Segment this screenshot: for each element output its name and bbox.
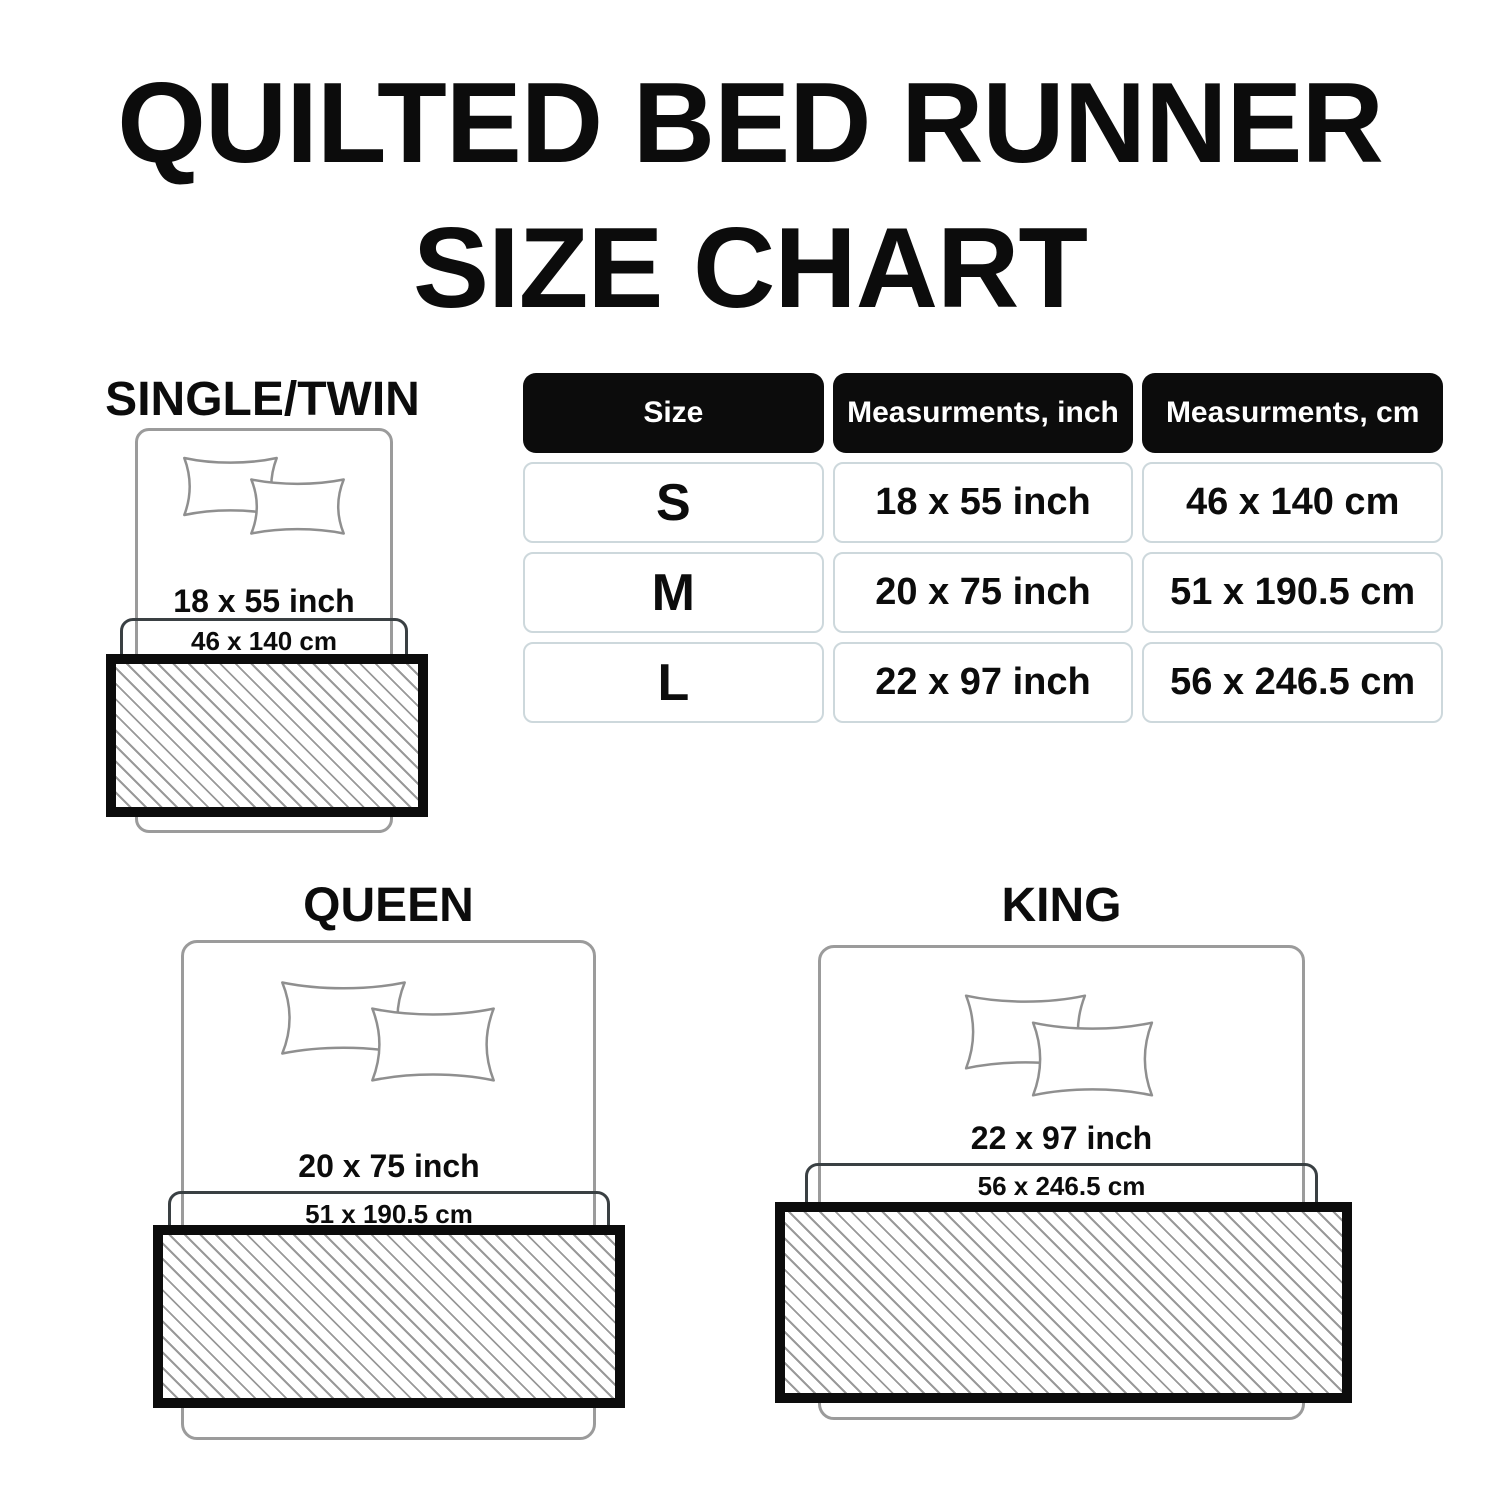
twin-inch-dimension-label: 18 x 55 inch	[120, 583, 408, 620]
pillow-icon	[1033, 1023, 1152, 1096]
queen-inch-dimension-label: 20 x 75 inch	[168, 1148, 610, 1185]
table-header-size: Size	[523, 373, 824, 453]
table-cell-inch-m: 20 x 75 inch	[833, 552, 1134, 633]
twin-section-label: SINGLE/TWIN	[90, 372, 435, 427]
pillow-icon	[372, 1009, 493, 1081]
king-bed-runner-swatch	[775, 1202, 1352, 1403]
table-cell-inch-l: 22 x 97 inch	[833, 642, 1134, 723]
table-cell-size-m: M	[523, 552, 824, 633]
twin-bed-runner-swatch	[106, 654, 428, 817]
twin-cm-dimension-label: 46 x 140 cm	[123, 621, 405, 657]
table-cell-inch-s: 18 x 55 inch	[833, 462, 1134, 543]
king-inch-dimension-label: 22 x 97 inch	[805, 1120, 1318, 1157]
table-cell-cm-l: 56 x 246.5 cm	[1142, 642, 1443, 723]
page-title-line1: QUILTED BED RUNNER	[0, 52, 1500, 197]
king-pillows-icon	[818, 945, 1305, 1125]
page-title-line2: SIZE CHART	[0, 197, 1500, 342]
table-cell-size-s: S	[523, 462, 824, 543]
twin-pillows-icon	[135, 428, 393, 578]
king-section-label: KING	[818, 878, 1305, 933]
queen-pillows-icon	[181, 940, 596, 1110]
king-cm-dimension-label: 56 x 246.5 cm	[808, 1166, 1315, 1202]
size-table: Size Measurments, inch Measurments, cm S…	[523, 373, 1443, 723]
queen-section-label: QUEEN	[181, 878, 596, 933]
table-header-inch: Measurments, inch	[833, 373, 1134, 453]
table-cell-cm-m: 51 x 190.5 cm	[1142, 552, 1443, 633]
table-cell-cm-s: 46 x 140 cm	[1142, 462, 1443, 543]
pillow-icon	[251, 480, 343, 534]
queen-bed-runner-swatch	[153, 1225, 625, 1408]
table-cell-size-l: L	[523, 642, 824, 723]
size-chart-infographic: QUILTED BED RUNNER SIZE CHART Size Measu…	[0, 0, 1500, 1500]
page-title: QUILTED BED RUNNER SIZE CHART	[0, 52, 1500, 342]
table-header-cm: Measurments, cm	[1142, 373, 1443, 453]
